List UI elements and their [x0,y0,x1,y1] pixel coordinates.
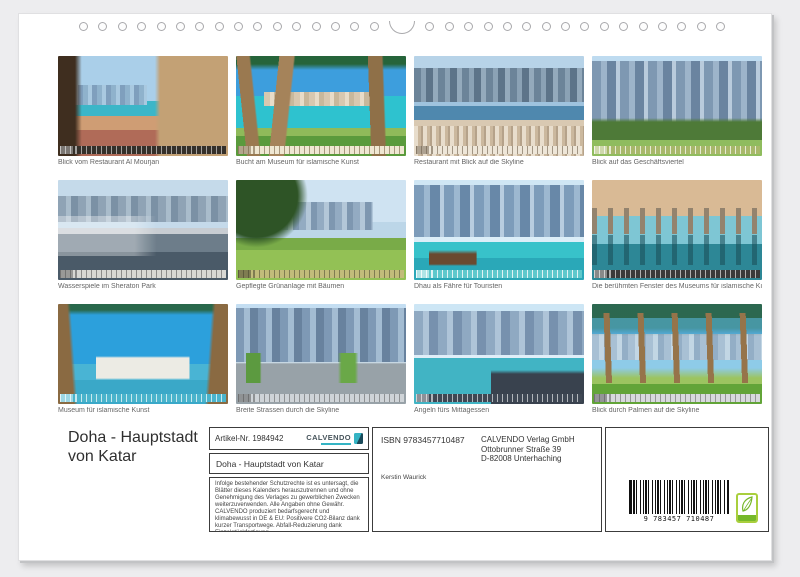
binding-hole [79,22,88,31]
article-number: Artikel-Nr. 1984942 [215,434,283,443]
thumbnail-photo [592,180,762,280]
binding-hole [253,22,262,31]
legal-text: Infolge bestehender Schutzrechte ist es … [215,481,363,532]
thumbnail-caption: Museum für islamische Kunst [58,407,228,415]
publisher-address: CALVENDO Verlag GmbH Ottobrunner Straße … [481,435,575,464]
thumbnail-cell: Gepflegte Grünanlage mit Bäumen [236,180,406,291]
info-left-column: Artikel-Nr. 1984942 CALVENDO Doha - Haup… [209,427,369,532]
binding-hole [157,22,166,31]
binding-hole [273,22,282,31]
binding-hole [619,22,628,31]
thumbnail-photo [592,56,762,156]
binding-hole [677,22,686,31]
isbn: ISBN 9783457710487 [381,435,465,445]
thumbnail-photo [414,304,584,404]
thumbnail-cell: Breite Strassen durch die Skyline [236,304,406,415]
thumbnail-grid: Blick vom Restaurant Al Mourjan Bucht am… [58,56,762,415]
publisher-line1: CALVENDO Verlag GmbH [481,435,575,445]
binding-hole [697,22,706,31]
thumbnail-cell: Blick durch Palmen auf die Skyline [592,304,762,415]
legal-box: Infolge bestehender Schutzrechte ist es … [209,477,369,532]
binding-hole [215,22,224,31]
binding-hole [464,22,473,31]
thumbnail-cell: Angeln fürs Mittagessen [414,304,584,415]
thumbnail-caption: Angeln fürs Mittagessen [414,407,584,415]
binding-hole [176,22,185,31]
publisher-line2: Ottobrunner Straße 39 [481,445,575,455]
binding-hole [639,22,648,31]
thumbnail-caption: Breite Strassen durch die Skyline [236,407,406,415]
binding-hole [484,22,493,31]
thumbnail-photo [236,304,406,404]
binding-hole [600,22,609,31]
thumbnail-photo [236,180,406,280]
binding-hole [312,22,321,31]
thumbnail-photo [58,180,228,280]
binding-hole [234,22,243,31]
calvendo-logo-tagline-bar [321,443,351,445]
thumbnail-cell: Blick auf das Geschäftsviertel [592,56,762,167]
binding-hole [658,22,667,31]
binding-hole [331,22,340,31]
thumbnail-caption: Blick vom Restaurant Al Mourjan [58,159,228,167]
calvendo-logo-icon [354,433,363,444]
author-name: Kerstin Waurick [381,474,426,481]
page-title-line2: von Katar [68,447,198,466]
binding-hole [522,22,531,31]
leaf-icon [740,496,754,514]
thumbnail-caption: Blick auf das Geschäftsviertel [592,159,762,167]
article-number-box: Artikel-Nr. 1984942 CALVENDO [209,427,369,450]
calendar-back-page: Blick vom Restaurant Al Mourjan Bucht am… [18,13,772,561]
binding-hole [561,22,570,31]
binding-hole [292,22,301,31]
binding-hole [445,22,454,31]
thumbnail-caption: Dhau als Fähre für Touristen [414,283,584,291]
barcode-box: 9 783457 710487 [605,427,769,532]
binding-hole [580,22,589,31]
thumbnail-cell: Die berühmten Fenster des Museums für is… [592,180,762,291]
binding-holes [79,21,725,35]
binding-hole [370,22,379,31]
thumbnail-caption: Blick durch Palmen auf die Skyline [592,407,762,415]
publisher-line3: D-82008 Unterhaching [481,454,575,464]
thumbnail-photo [592,304,762,404]
binding-hole [350,22,359,31]
calvendo-logo-text: CALVENDO [306,433,351,442]
thumbnail-caption: Gepflegte Grünanlage mit Bäumen [236,283,406,291]
page-title-line1: Doha - Hauptstadt [68,428,198,447]
isbn-publisher-box: ISBN 9783457710487 CALVENDO Verlag GmbH … [372,427,602,532]
thumbnail-cell: Wasserspiele im Sheraton Park [58,180,228,291]
thumbnail-caption: Bucht am Museum für islamische Kunst [236,159,406,167]
thumbnail-photo [414,56,584,156]
page-title: Doha - Hauptstadt von Katar [68,428,198,466]
product-title: Doha - Hauptstadt von Katar [216,459,324,469]
binding-hole [425,22,434,31]
info-panel: Artikel-Nr. 1984942 CALVENDO Doha - Haup… [209,427,769,532]
barcode: 9 783457 710487 [629,480,729,523]
thumbnail-cell: Blick vom Restaurant Al Mourjan [58,56,228,167]
binding-hole [98,22,107,31]
thumbnail-photo [414,180,584,280]
thumbnail-photo [236,56,406,156]
eco-leaf-badge [736,493,758,523]
binding-hole [716,22,725,31]
binding-hole [542,22,551,31]
thumbnail-cell: Restaurant mit Blick auf die Skyline [414,56,584,167]
thumbnail-photo [58,56,228,156]
thumbnail-cell: Bucht am Museum für islamische Kunst [236,56,406,167]
binding-hole [503,22,512,31]
thumbnail-cell: Dhau als Fähre für Touristen [414,180,584,291]
calvendo-logo: CALVENDO [306,433,363,445]
thumbnail-caption: Restaurant mit Blick auf die Skyline [414,159,584,167]
hanger-cutout [389,21,415,34]
barcode-digits: 9 783457 710487 [644,515,715,523]
barcode-bars [629,480,729,514]
binding-hole [118,22,127,31]
binding-hole [195,22,204,31]
thumbnail-caption: Wasserspiele im Sheraton Park [58,283,228,291]
product-title-box: Doha - Hauptstadt von Katar [209,453,369,474]
thumbnail-caption: Die berühmten Fenster des Museums für is… [592,283,762,291]
thumbnail-cell: Museum für islamische Kunst [58,304,228,415]
binding-hole [137,22,146,31]
thumbnail-photo [58,304,228,404]
